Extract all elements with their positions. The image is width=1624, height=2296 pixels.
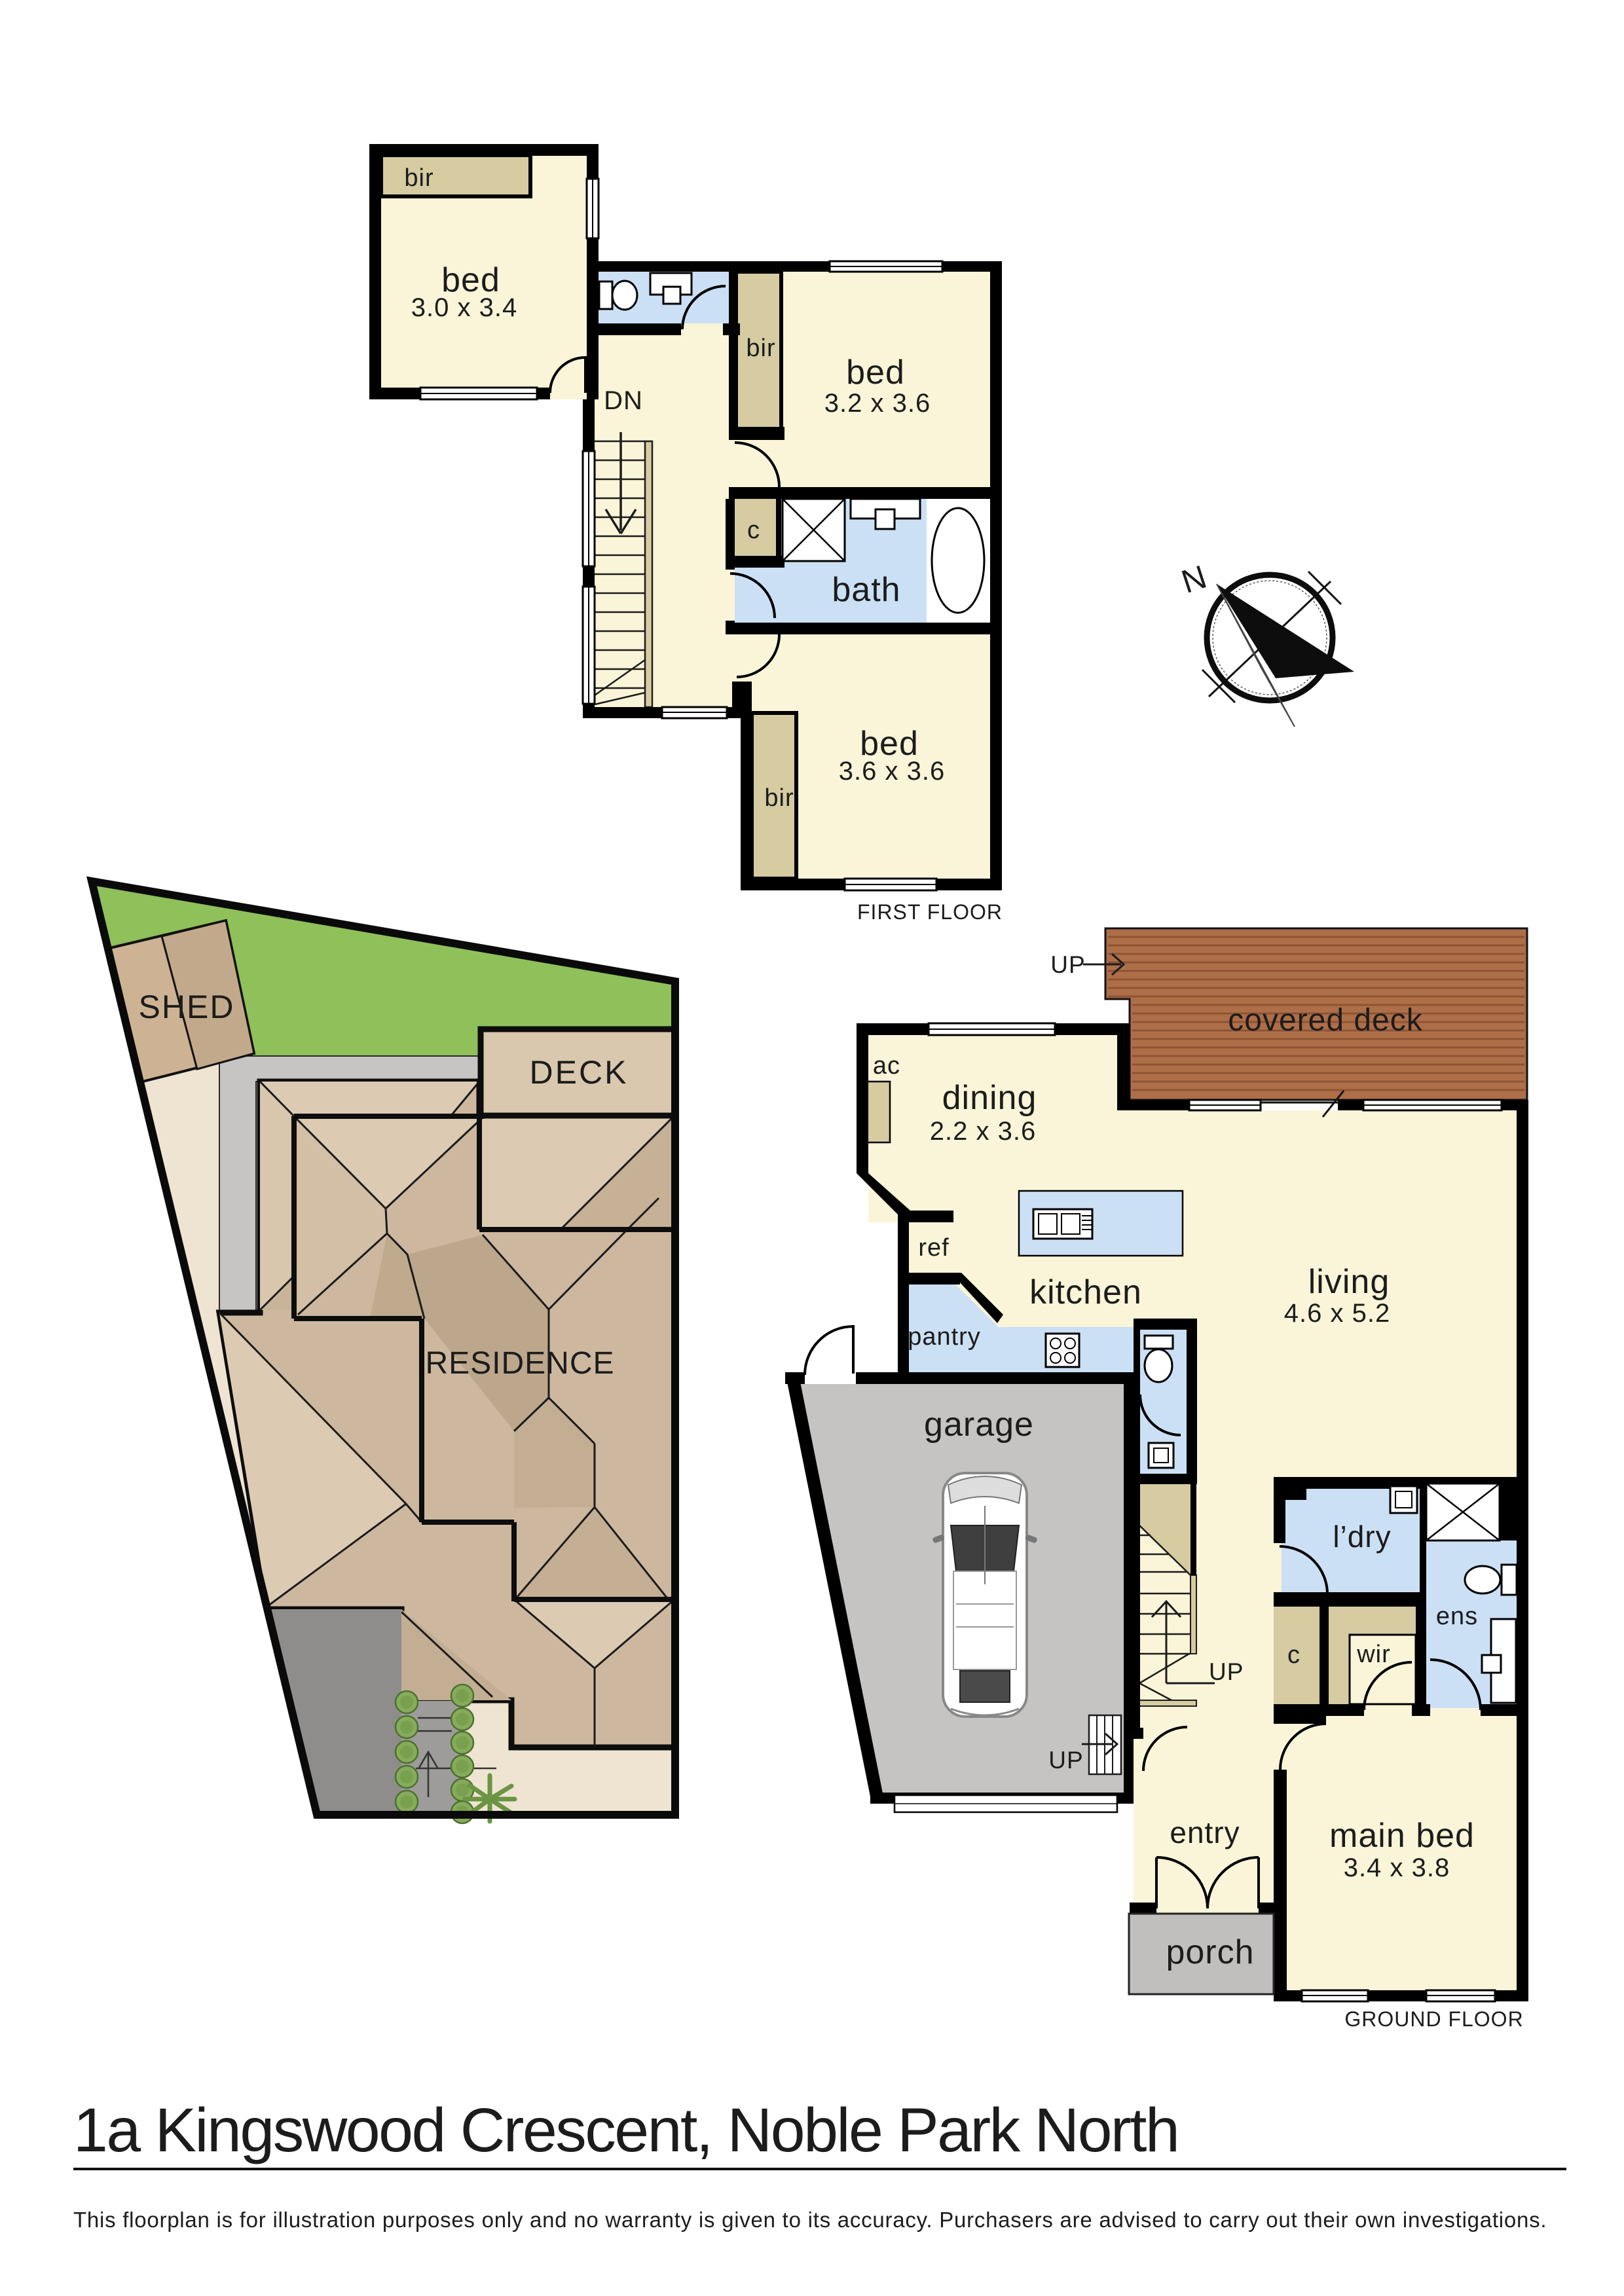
svg-text:FIRST FLOOR: FIRST FLOOR xyxy=(857,900,1003,924)
svg-text:3.2 x 3.6: 3.2 x 3.6 xyxy=(824,389,931,418)
svg-text:4.6 x 5.2: 4.6 x 5.2 xyxy=(1284,1299,1390,1328)
svg-text:c: c xyxy=(1287,1641,1301,1669)
svg-text:garage: garage xyxy=(924,1406,1034,1444)
svg-text:3.6 x 3.6: 3.6 x 3.6 xyxy=(839,757,945,786)
svg-text:ens: ens xyxy=(1436,1603,1478,1630)
svg-text:ref: ref xyxy=(918,1234,949,1262)
svg-text:DECK: DECK xyxy=(530,1054,629,1091)
svg-text:bath: bath xyxy=(832,571,900,609)
svg-text:dining: dining xyxy=(942,1079,1037,1117)
svg-text:wir: wir xyxy=(1356,1641,1391,1668)
svg-text:RESIDENCE: RESIDENCE xyxy=(425,1346,614,1381)
svg-text:3.4 x 3.8: 3.4 x 3.8 xyxy=(1344,1853,1450,1882)
svg-text:porch: porch xyxy=(1166,1933,1254,1971)
svg-text:SHED: SHED xyxy=(139,989,235,1025)
svg-text:DN: DN xyxy=(604,386,643,415)
svg-text:bed: bed xyxy=(846,354,905,392)
svg-text:kitchen: kitchen xyxy=(1029,1273,1142,1311)
svg-text:bir: bir xyxy=(746,335,775,362)
svg-text:This floorplan is for illustra: This floorplan is for illustration purpo… xyxy=(73,2208,1547,2232)
svg-text:c: c xyxy=(747,517,760,544)
svg-text:main bed: main bed xyxy=(1329,1817,1475,1855)
svg-text:GROUND FLOOR: GROUND FLOOR xyxy=(1344,2007,1523,2031)
svg-text:UP: UP xyxy=(1209,1658,1244,1685)
svg-text:entry: entry xyxy=(1170,1815,1240,1850)
svg-text:l’dry: l’dry xyxy=(1333,1520,1391,1554)
svg-text:bir: bir xyxy=(404,164,434,192)
svg-text:UP: UP xyxy=(1048,1747,1083,1774)
svg-text:UP: UP xyxy=(1050,951,1085,978)
svg-text:1a Kingswood Crescent, Noble P: 1a Kingswood Crescent, Noble Park North xyxy=(73,2096,1178,2165)
svg-text:covered deck: covered deck xyxy=(1228,1003,1423,1038)
svg-text:3.0 x 3.4: 3.0 x 3.4 xyxy=(411,293,517,322)
svg-text:ac: ac xyxy=(873,1052,900,1080)
svg-text:bir: bir xyxy=(764,784,794,812)
svg-text:living: living xyxy=(1308,1263,1390,1301)
svg-text:pantry: pantry xyxy=(908,1323,981,1351)
svg-text:2.2 x 3.6: 2.2 x 3.6 xyxy=(930,1117,1036,1146)
